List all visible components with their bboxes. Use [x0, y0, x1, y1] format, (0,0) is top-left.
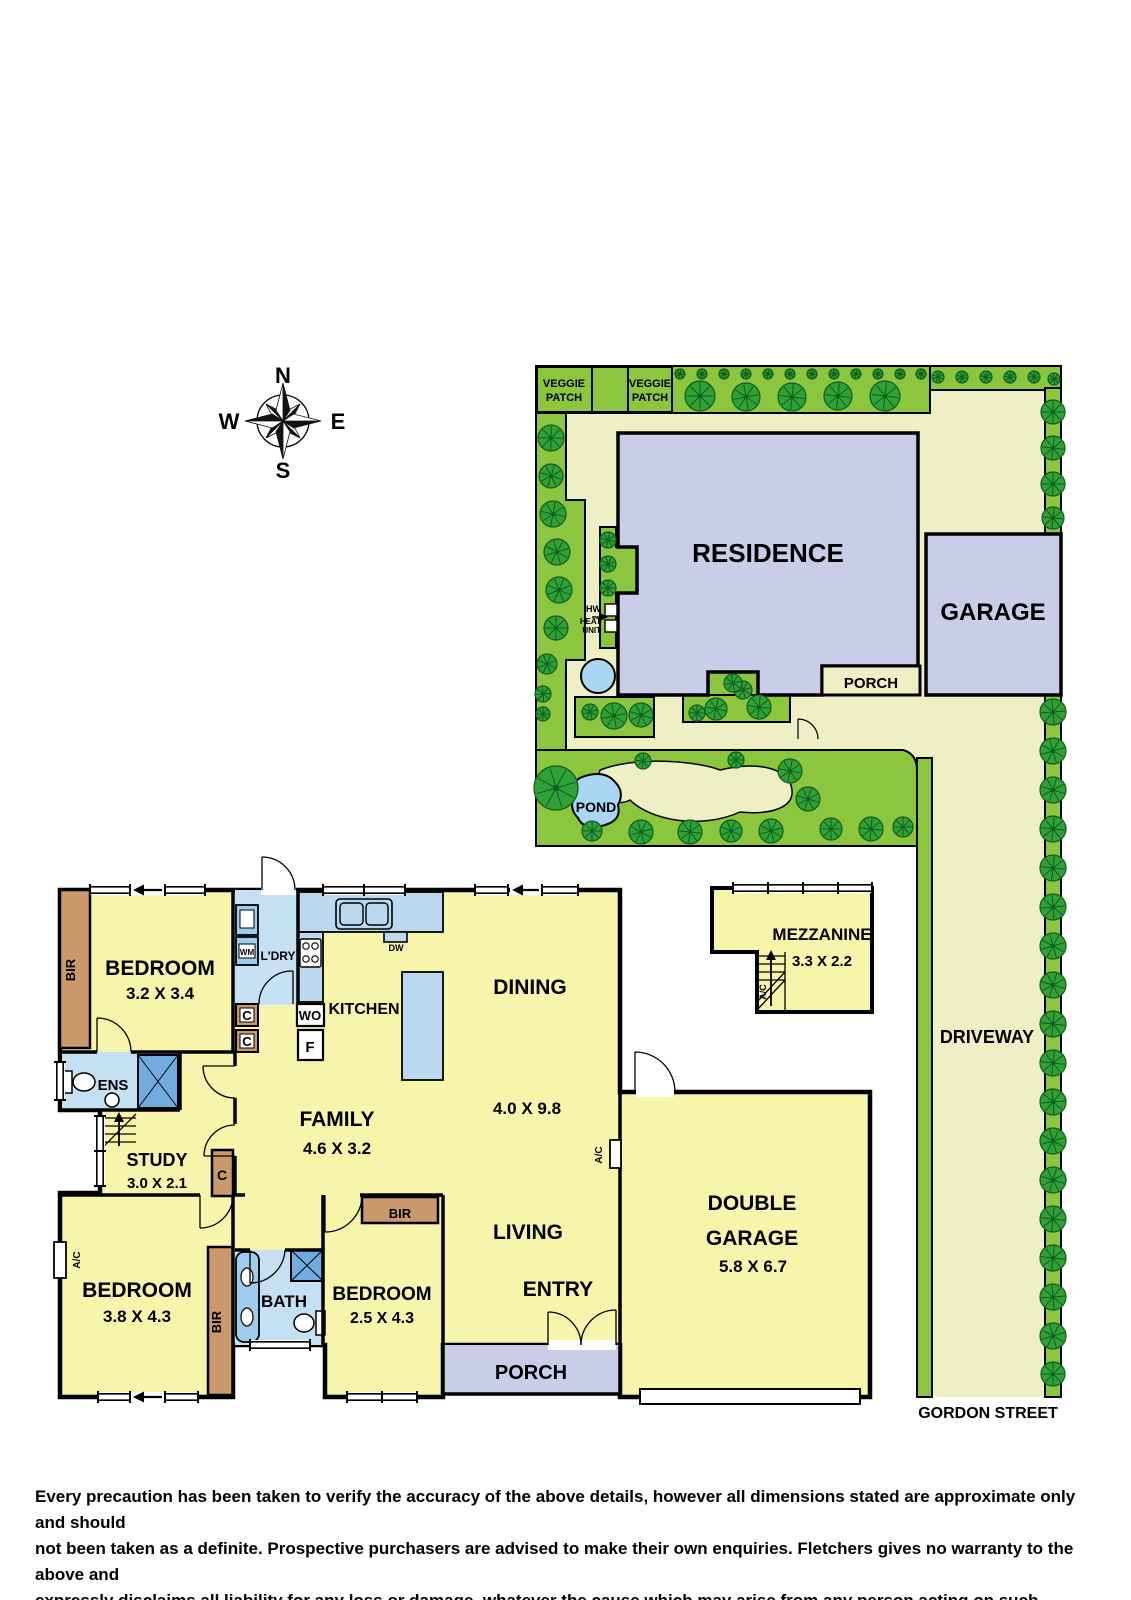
- tree-icon: [1040, 972, 1066, 998]
- tree-icon: [544, 539, 570, 565]
- bedroom1-dims: 3.2 X 3.4: [126, 984, 195, 1003]
- tree-icon: [1040, 1245, 1066, 1271]
- property-plan-drawing: VEGGIE PATCH VEGGIE PATCH HW HEAT UNIT R…: [0, 0, 1131, 1600]
- garden-strip-top-right: [930, 366, 1061, 390]
- tree-icon: [1040, 738, 1066, 764]
- tree-icon: [932, 371, 944, 383]
- bath-label: BATH: [261, 1292, 307, 1311]
- tree-icon: [1028, 371, 1040, 383]
- tree-icon: [796, 787, 820, 811]
- mezzanine-dims: 3.3 X 2.2: [792, 953, 852, 970]
- tree-icon: [1040, 1206, 1066, 1232]
- kitchen-island: [402, 972, 443, 1080]
- tree-icon: [601, 703, 627, 729]
- hw-label: HW: [586, 604, 601, 614]
- tree-icon: [537, 654, 557, 674]
- disclaimer: Every precaution has been taken to verif…: [35, 1484, 1107, 1600]
- tree-icon: [807, 369, 817, 379]
- study-dims: 3.0 X 2.1: [127, 1175, 187, 1192]
- laundry-trough-bowl: [240, 910, 254, 928]
- tree-icon: [582, 821, 602, 841]
- dishwasher: [384, 932, 407, 942]
- living-ac-box: [610, 1140, 621, 1168]
- tree-icon: [873, 369, 883, 379]
- disclaimer-line2: not been taken as a definite. Prospectiv…: [35, 1536, 1107, 1588]
- tree-icon: [720, 820, 742, 842]
- dining-label: DINING: [493, 976, 567, 999]
- bedroom2-ac-box: [54, 1242, 66, 1278]
- tree-icon: [629, 820, 653, 844]
- laundry-label: L'DRY: [260, 949, 295, 963]
- kitchen-label: KITCHEN: [328, 1001, 399, 1018]
- tree-icon: [540, 501, 566, 527]
- bathtub-basin2: [241, 1308, 253, 1326]
- window: [542, 884, 578, 896]
- tree-icon: [916, 369, 926, 379]
- tree-icon: [1041, 472, 1065, 496]
- study-label: STUDY: [126, 1150, 187, 1170]
- tree-icon: [1041, 436, 1065, 460]
- tree-icon: [759, 819, 783, 843]
- heat-unit-box: [605, 620, 617, 632]
- pond-label: POND: [576, 799, 616, 815]
- double-garage-label1: DOUBLE: [708, 1192, 797, 1215]
- arrow-icon: [510, 885, 541, 896]
- tree-icon: [785, 369, 795, 379]
- door-gap-garage: [636, 1087, 674, 1097]
- window: [165, 884, 205, 896]
- dw-label: DW: [389, 943, 404, 953]
- ens-basin: [105, 1093, 119, 1107]
- driveway-strip-left: [917, 758, 932, 1397]
- window: [323, 884, 405, 896]
- tree-icon: [980, 371, 992, 383]
- tree-icon: [1040, 1128, 1066, 1154]
- mezzanine-ac-label: A/C: [758, 984, 768, 1000]
- tree-icon: [763, 369, 773, 379]
- living-ac-label: A/C: [594, 1146, 605, 1163]
- c2-label: C: [242, 1034, 252, 1049]
- floor-plan-page: VEGGIE PATCH VEGGIE PATCH HW HEAT UNIT R…: [0, 0, 1131, 1600]
- disclaimer-line3: expressly disclaims all liability for an…: [35, 1588, 1107, 1600]
- study-c-label: C: [217, 1167, 227, 1183]
- tree-icon: [728, 752, 744, 768]
- dining-dims: 4.0 X 9.8: [493, 1099, 561, 1118]
- family-dims: 4.6 X 3.2: [303, 1139, 371, 1158]
- tree-icon: [778, 759, 802, 783]
- garage-door-swing: [635, 1052, 675, 1092]
- compass-north: N: [275, 363, 291, 388]
- heat-unit-label2: UNIT: [582, 626, 601, 635]
- disclaimer-line1: Every precaution has been taken to verif…: [35, 1484, 1107, 1536]
- veggie-patch-2-label: VEGGIE: [629, 378, 671, 390]
- bedroom3-label: BEDROOM: [332, 1284, 431, 1305]
- tree-icon: [600, 580, 616, 596]
- tree-icon: [539, 464, 563, 488]
- tree-icon: [895, 369, 905, 379]
- veggie-patch-mid: [592, 367, 628, 412]
- door-gap-laundry-ext: [261, 885, 296, 895]
- tree-icon: [741, 369, 751, 379]
- tree-icon: [544, 616, 568, 640]
- cooktop: [300, 939, 321, 967]
- tree-icon: [1041, 1362, 1065, 1386]
- tree-icon: [600, 556, 616, 572]
- bedroom3-dims: 2.5 X 4.3: [350, 1310, 414, 1327]
- bedroom1-label: BEDROOM: [105, 957, 215, 980]
- tree-icon: [685, 381, 715, 411]
- compass-star: [245, 383, 321, 459]
- tree-icon: [689, 705, 705, 721]
- tree-icon: [536, 707, 550, 721]
- tree-icon: [870, 381, 900, 411]
- family-label: FAMILY: [299, 1108, 374, 1131]
- window: [54, 1062, 66, 1100]
- tree-icon: [1048, 373, 1060, 385]
- tree-icon: [719, 369, 729, 379]
- hw-unit-box: [605, 604, 617, 616]
- window: [165, 1391, 198, 1403]
- tree-icon: [1040, 816, 1066, 842]
- window: [347, 1391, 417, 1403]
- tree-icon: [629, 703, 653, 727]
- tree-icon: [697, 369, 707, 379]
- tree-icon: [600, 532, 616, 548]
- tree-icon: [582, 704, 598, 720]
- site-porch-label: PORCH: [844, 675, 898, 692]
- compass-east: E: [331, 409, 346, 434]
- tree-icon: [635, 753, 651, 769]
- arrow-icon: [131, 885, 164, 896]
- tree-icon: [820, 818, 842, 840]
- tree-icon: [1040, 1323, 1066, 1349]
- tree-icon: [1040, 1050, 1066, 1076]
- window: [250, 1339, 310, 1351]
- window: [94, 1116, 106, 1186]
- bedroom2-dims: 3.8 X 4.3: [103, 1307, 171, 1326]
- tree-icon: [1040, 777, 1066, 803]
- tree-icon: [778, 383, 806, 411]
- tree-icon: [1042, 507, 1064, 529]
- window: [98, 1391, 130, 1403]
- bedroom2-bir-label: BIR: [209, 1310, 224, 1333]
- site-garage-label: GARAGE: [940, 599, 1045, 626]
- arrow-icon: [131, 1392, 164, 1403]
- window: [90, 884, 130, 896]
- tree-icon: [1040, 1167, 1066, 1193]
- heat-unit-label: HEAT: [580, 617, 601, 626]
- window: [733, 882, 872, 894]
- tree-icon: [1040, 1284, 1066, 1310]
- veggie-patch-1-label: VEGGIE: [543, 378, 585, 390]
- bedroom3-bir-label: BIR: [389, 1206, 412, 1221]
- tree-icon: [859, 817, 883, 841]
- tree-icon: [705, 698, 727, 720]
- veggie-patch-1-label2: PATCH: [546, 392, 582, 404]
- compass-rose: N E S W: [219, 363, 346, 483]
- tree-icon: [1041, 400, 1065, 424]
- tree-icon: [1040, 894, 1066, 920]
- veggie-patch-2-label2: PATCH: [632, 392, 668, 404]
- door-gap-entry: [548, 1340, 616, 1350]
- tree-icon: [851, 369, 861, 379]
- tree-icon: [1040, 855, 1066, 881]
- mezzanine-floor: [712, 888, 872, 1012]
- living-label: LIVING: [493, 1221, 563, 1244]
- compass-west: W: [219, 409, 240, 434]
- garage-roller-door: [640, 1389, 860, 1404]
- bedroom1-bir-label: BIR: [63, 958, 78, 981]
- tree-icon: [1040, 1011, 1066, 1037]
- tree-icon: [829, 369, 839, 379]
- tree-icon: [824, 382, 852, 410]
- tree-icon: [535, 686, 551, 702]
- mezzanine-label: MEZZANINE: [772, 925, 871, 944]
- tree-icon: [1040, 933, 1066, 959]
- tree-icon: [1004, 371, 1016, 383]
- driveway-label: DRIVEWAY: [940, 1027, 1034, 1047]
- tree-icon: [893, 817, 913, 837]
- ens-label: ENS: [98, 1077, 129, 1094]
- tree-icon: [732, 383, 760, 411]
- tree-icon: [678, 820, 702, 844]
- double-garage-dims: 5.8 X 6.7: [719, 1257, 787, 1276]
- tree-icon: [675, 369, 685, 379]
- street-label: GORDON STREET: [918, 1405, 1058, 1422]
- wo-label: WO: [299, 1008, 321, 1023]
- tree-icon: [1040, 699, 1066, 725]
- tree-icon: [546, 577, 572, 603]
- entry-label: ENTRY: [523, 1278, 593, 1301]
- tree-icon: [747, 695, 771, 719]
- porch-label: PORCH: [495, 1362, 567, 1384]
- tree-icon: [956, 371, 968, 383]
- bathtub: [236, 1252, 259, 1342]
- bedroom2-ac-label: A/C: [72, 1251, 83, 1268]
- ens-toilet-bowl: [73, 1073, 95, 1091]
- tree-icon: [1040, 1089, 1066, 1115]
- double-garage-label2: GARAGE: [706, 1227, 798, 1250]
- tree-icon: [534, 766, 578, 810]
- fridge-label: F: [305, 1039, 314, 1056]
- residence-label: RESIDENCE: [692, 538, 844, 568]
- floor-plan: MEZZANINE 3.3 X 2.2 A/C: [54, 857, 872, 1404]
- bath-toilet-bowl: [294, 1314, 314, 1332]
- wm-label: WM: [240, 948, 255, 957]
- compass-south: S: [276, 458, 291, 483]
- mezzanine: MEZZANINE 3.3 X 2.2 A/C: [712, 888, 872, 1012]
- tree-icon: [724, 674, 742, 692]
- c1-label: C: [242, 1008, 252, 1023]
- tree-icon: [538, 425, 564, 451]
- bedroom2-label: BEDROOM: [82, 1279, 192, 1302]
- water-tank: [581, 659, 615, 693]
- window: [475, 884, 508, 896]
- kitchen-bench-top: [298, 892, 443, 932]
